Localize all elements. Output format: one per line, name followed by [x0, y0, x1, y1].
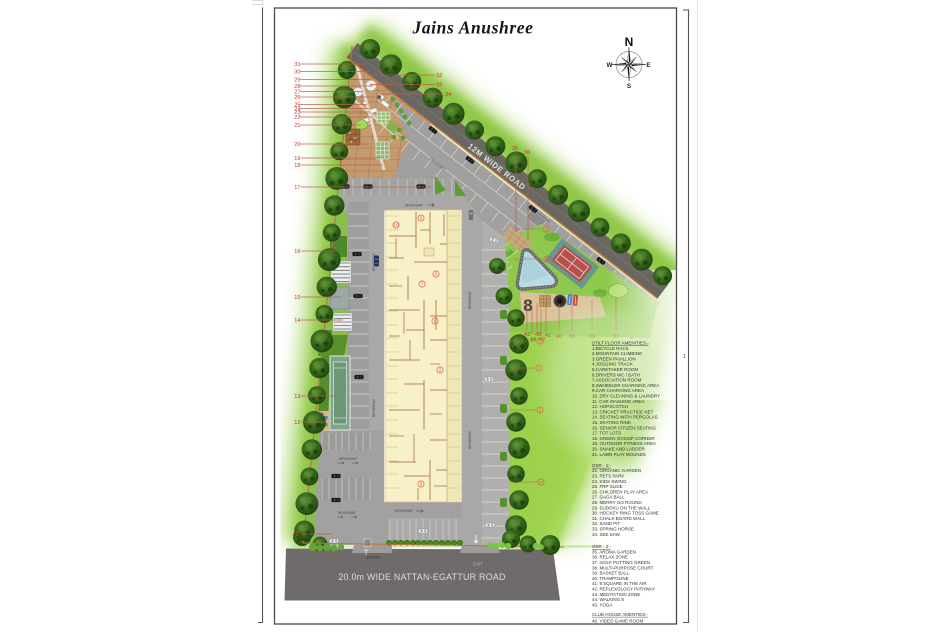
svg-text:29. SUDOKU ON THE WALL: 29. SUDOKU ON THE WALL [592, 505, 651, 510]
svg-text:43. MEDITATION ZONE: 43. MEDITATION ZONE [592, 592, 640, 597]
svg-text:DRIVEWAY: DRIVEWAY [468, 290, 472, 309]
svg-text:38. MULTI-PURPOSE COURT: 38. MULTI-PURPOSE COURT [592, 565, 654, 570]
svg-text:37. GOLF PUTTING GREEN: 37. GOLF PUTTING GREEN [592, 560, 650, 565]
svg-text:24. KIDS SWING: 24. KIDS SWING [592, 479, 627, 484]
svg-text:22. ORGANIC GARDEN: 22. ORGANIC GARDEN [592, 468, 641, 473]
svg-text:S: S [627, 83, 631, 90]
svg-text:33. SPRING HORSE: 33. SPRING HORSE [592, 527, 634, 532]
svg-text:8.2WHEELER CHARGING AREA: 8.2WHEELER CHARGING AREA [592, 383, 659, 388]
svg-text:8: 8 [434, 319, 437, 325]
svg-text:15. SKATING RINK: 15. SKATING RINK [592, 420, 631, 425]
svg-text:ENTRY: ENTRY [367, 555, 382, 560]
svg-text:19: 19 [294, 156, 300, 162]
svg-text:8: 8 [523, 296, 532, 315]
svg-text:23. PETS PARK: 23. PETS PARK [592, 474, 624, 479]
svg-text:29: 29 [294, 78, 300, 84]
svg-text:3.GREEN PAVILLION: 3.GREEN PAVILLION [592, 356, 636, 361]
svg-text:42. REFLEXOLOGY PATHWAY: 42. REFLEXOLOGY PATHWAY [592, 587, 655, 592]
svg-text:CLUB HOUSE AMENTIES:-: CLUB HOUSE AMENTIES:- [592, 612, 649, 617]
svg-text:26. CHILDREN PLAY AREA: 26. CHILDREN PLAY AREA [592, 489, 648, 494]
svg-text:35. AROMA GARDEN: 35. AROMA GARDEN [592, 549, 636, 554]
svg-text:15: 15 [294, 295, 300, 301]
svg-text:2: 2 [538, 366, 541, 372]
svg-text:1: 1 [683, 354, 686, 360]
svg-text:21: 21 [294, 123, 300, 129]
svg-text:17: 17 [294, 185, 300, 191]
svg-text:41. 9 SQUARE IN THE AIR: 41. 9 SQUARE IN THE AIR [592, 581, 647, 586]
svg-text:4.JOGGING TRACK: 4.JOGGING TRACK [592, 362, 633, 367]
svg-text:DRIVEWAY: DRIVEWAY [395, 509, 414, 513]
svg-text:10: 10 [393, 223, 399, 229]
svg-text:5.CARETAKER ROOM: 5.CARETAKER ROOM [592, 367, 638, 372]
svg-text:22: 22 [294, 115, 300, 121]
svg-text:20. SNAKE AND LADDER: 20. SNAKE AND LADDER [592, 447, 646, 452]
svg-text:1: 1 [539, 339, 542, 345]
svg-text:2: 2 [439, 368, 442, 374]
svg-text:30: 30 [294, 70, 300, 76]
svg-text:20: 20 [294, 142, 300, 148]
svg-text:OSR - 2:-: OSR - 2:- [592, 544, 612, 549]
svg-text:39. BASKET BALL: 39. BASKET BALL [592, 571, 630, 576]
svg-text:11: 11 [295, 532, 301, 538]
svg-text:16. SENIOR CITIZEN SEATING: 16. SENIOR CITIZEN SEATING [592, 425, 657, 430]
svg-text:33: 33 [436, 83, 442, 89]
svg-text:25. FRP SLIDE: 25. FRP SLIDE [592, 484, 623, 489]
svg-text:N: N [625, 35, 634, 49]
svg-text:45. YOGA: 45. YOGA [592, 602, 612, 607]
svg-text:28. MERRY GO ROUND: 28. MERRY GO ROUND [592, 500, 642, 505]
svg-text:DRIVEWAY: DRIVEWAY [338, 511, 357, 515]
svg-text:9.CAR CHARGING AREA: 9.CAR CHARGING AREA [592, 388, 644, 393]
svg-text:20.0m WIDE NATTAN-EGATTUR ROAD: 20.0m WIDE NATTAN-EGATTUR ROAD [338, 572, 505, 582]
svg-text:STILT FLOOR AMENITIES:-: STILT FLOOR AMENITIES:- [592, 341, 649, 346]
svg-text:31. CHALK BOARD WALL: 31. CHALK BOARD WALL [592, 516, 646, 521]
svg-text:EXIT: EXIT [473, 562, 483, 567]
svg-text:2.MOUNTAIN CLIMBING: 2.MOUNTAIN CLIMBING [592, 351, 643, 356]
svg-text:44. WALKING 8: 44. WALKING 8 [592, 597, 624, 602]
svg-text:32. SAND PIT: 32. SAND PIT [592, 521, 621, 526]
svg-text:30. HOCKEY RING TOSS GAME: 30. HOCKEY RING TOSS GAME [592, 511, 659, 516]
svg-text:DRIVEWAY: DRIVEWAY [468, 430, 472, 449]
svg-text:34. SEE SAW: 34. SEE SAW [592, 532, 621, 537]
svg-text:18. GREEN GOSSIP CORNER: 18. GREEN GOSSIP CORNER [592, 436, 655, 441]
svg-text:13: 13 [294, 394, 300, 400]
svg-text:9: 9 [420, 482, 423, 488]
svg-text:19. OUTDOOR FITNESS AREA: 19. OUTDOOR FITNESS AREA [592, 441, 656, 446]
svg-text:OSR - 1:-: OSR - 1:- [592, 463, 612, 468]
svg-text:W: W [607, 62, 613, 69]
svg-text:10. DRY CLEANING & LAUNDRY: 10. DRY CLEANING & LAUNDRY [592, 394, 660, 399]
svg-text:21. LAWN PLAY MOUNDS: 21. LAWN PLAY MOUNDS [592, 452, 646, 457]
svg-text:36. RELAX ZONE: 36. RELAX ZONE [592, 555, 628, 560]
svg-text:6.DRIVERS WC / BATH: 6.DRIVERS WC / BATH [592, 372, 640, 377]
svg-text:18: 18 [294, 163, 300, 169]
svg-text:12. HOPSCOTCH: 12. HOPSCOTCH [592, 404, 628, 409]
svg-text:7.ASSOCIATION ROOM: 7.ASSOCIATION ROOM [592, 378, 642, 383]
svg-text:12: 12 [294, 420, 300, 426]
svg-text:1.BICYCLE RACK: 1.BICYCLE RACK [592, 346, 629, 351]
svg-text:14. SEATING WITH PERGOLAS: 14. SEATING WITH PERGOLAS [592, 415, 658, 420]
svg-text:40. TRAMPOLINE: 40. TRAMPOLINE [592, 576, 629, 581]
svg-text:14: 14 [294, 318, 300, 324]
svg-text:46. VIDEO GAME ROOM: 46. VIDEO GAME ROOM [592, 618, 644, 623]
svg-text:34: 34 [445, 92, 451, 98]
svg-text:3: 3 [539, 408, 542, 414]
svg-text:DRIVEWAY: DRIVEWAY [372, 398, 376, 417]
svg-text:11. CAR WASHING AREA: 11. CAR WASHING AREA [592, 399, 645, 404]
svg-text:E: E [646, 62, 650, 69]
svg-text:41: 41 [545, 333, 551, 339]
svg-text:16: 16 [294, 249, 300, 255]
svg-text:31: 31 [294, 62, 300, 68]
svg-text:26: 26 [294, 95, 300, 101]
svg-text:32: 32 [436, 73, 442, 79]
svg-text:Jains Anushree: Jains Anushree [411, 18, 533, 38]
svg-text:7: 7 [421, 282, 424, 288]
svg-text:35: 35 [512, 146, 518, 152]
svg-text:13. CRICKET PRACTICE NET: 13. CRICKET PRACTICE NET [592, 409, 654, 414]
svg-text:DRIVEWAY: DRIVEWAY [339, 457, 358, 461]
svg-text:17. TOT LOTS: 17. TOT LOTS [592, 431, 621, 436]
svg-text:3: 3 [546, 257, 549, 263]
svg-text:36: 36 [524, 150, 530, 156]
svg-text:4: 4 [540, 480, 543, 486]
svg-text:2: 2 [545, 227, 548, 233]
svg-text:DRIVEWAY: DRIVEWAY [405, 204, 424, 208]
svg-text:5: 5 [420, 216, 423, 222]
svg-text:27. GAGA BALL: 27. GAGA BALL [592, 495, 625, 500]
svg-text:6: 6 [435, 272, 438, 278]
